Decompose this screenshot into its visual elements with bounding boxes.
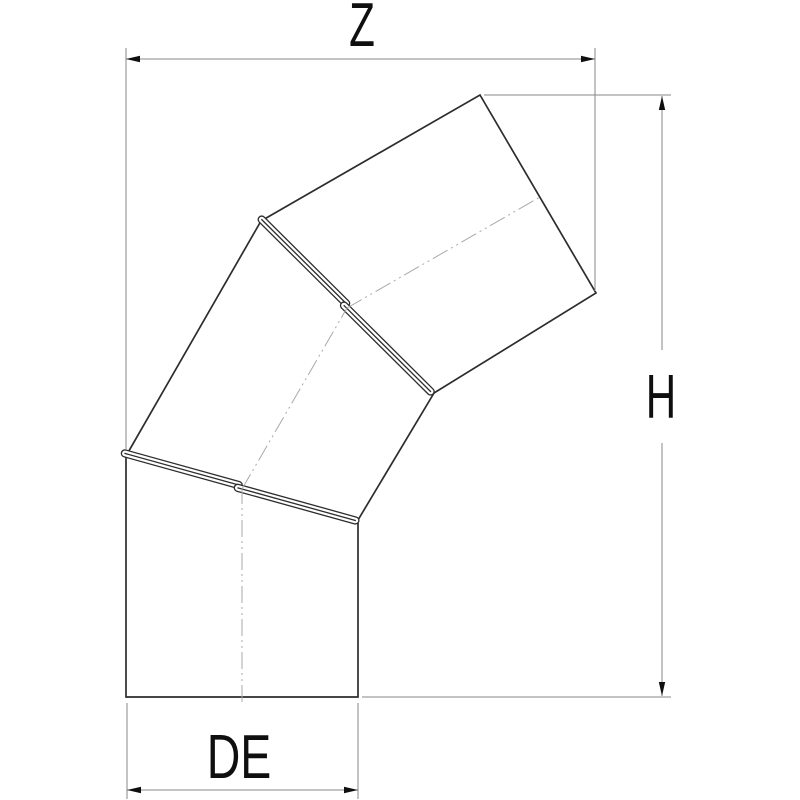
arrowhead-left	[127, 787, 141, 793]
pipe-elbow	[120, 95, 596, 702]
arrowhead-top	[659, 96, 665, 110]
arrowhead-right	[581, 56, 595, 62]
arrowhead-right	[344, 787, 358, 793]
dimension-h-label: H	[646, 363, 676, 432]
dimension-z-label: Z	[349, 0, 375, 60]
arrowhead-left	[126, 56, 140, 62]
arrowhead-bottom	[659, 682, 665, 696]
elbow-technical-drawing: Z H DE	[0, 0, 800, 800]
drawing-canvas: Z H DE	[0, 0, 800, 800]
dimension-de-label: DE	[207, 721, 272, 791]
dimension-de: DE	[127, 703, 358, 799]
